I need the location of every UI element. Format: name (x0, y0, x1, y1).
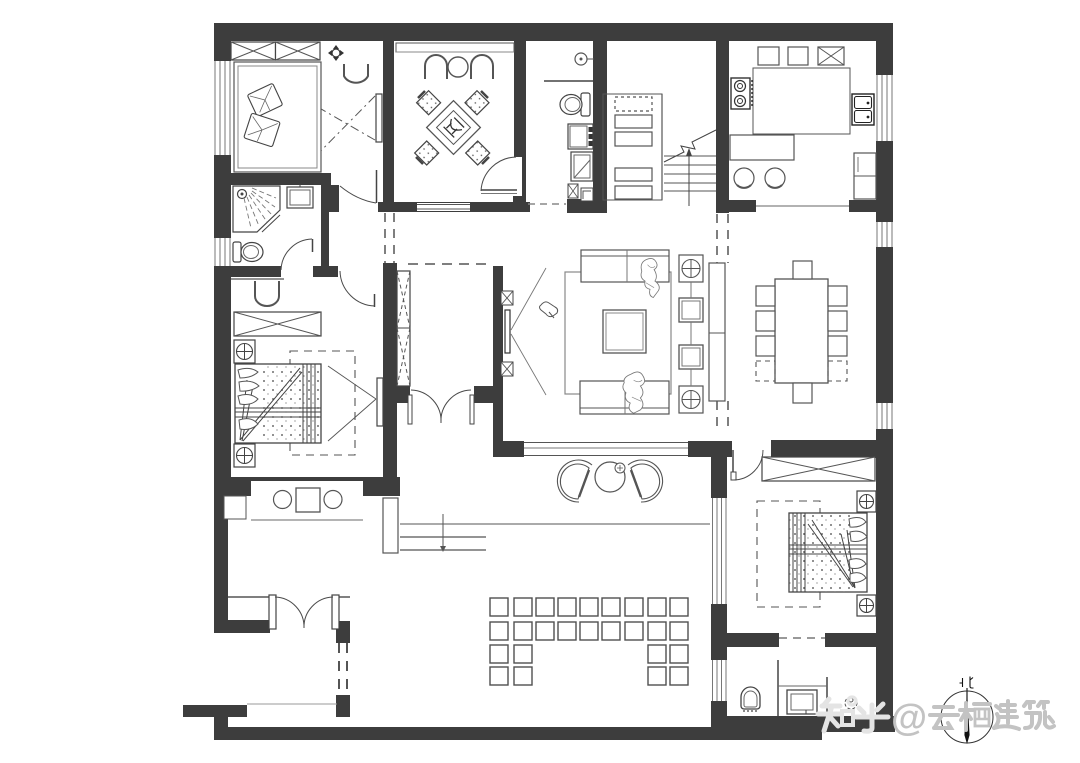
svg-text:@: @ (891, 697, 927, 738)
